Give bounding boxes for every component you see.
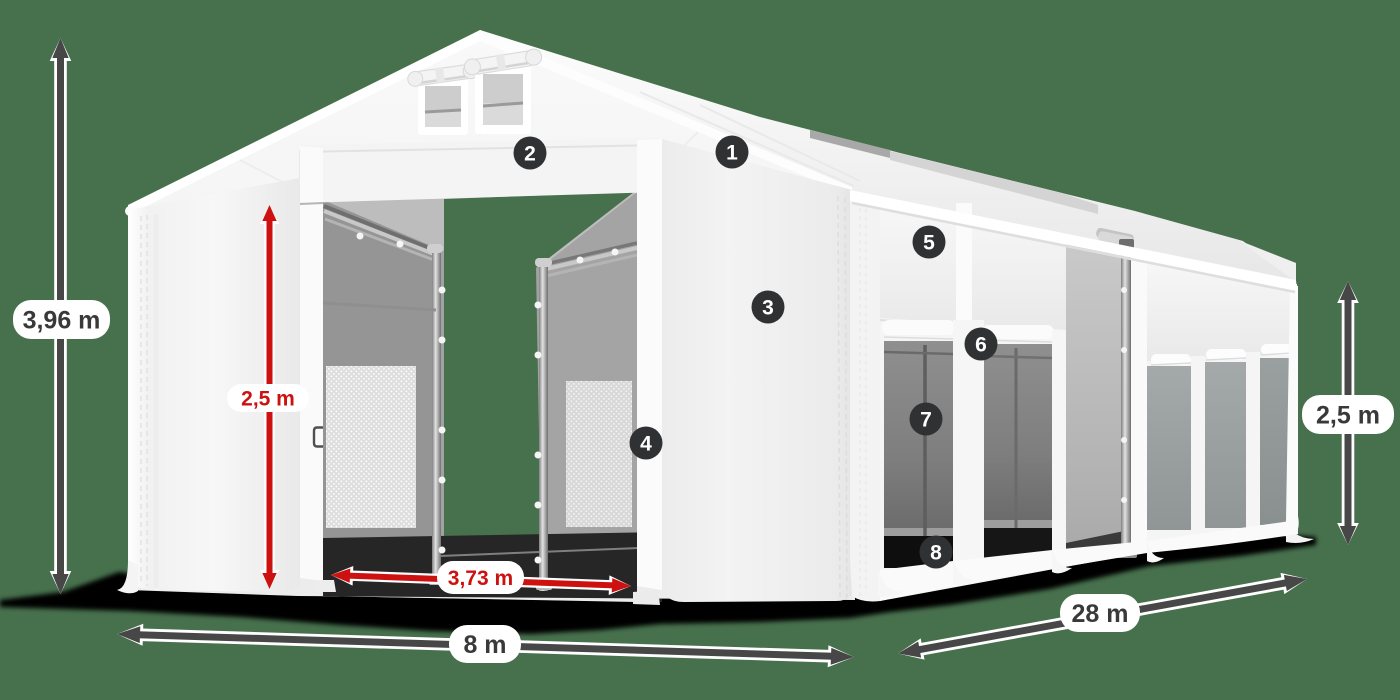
svg-text:1: 1 [726, 142, 738, 165]
svg-text:6: 6 [975, 334, 987, 357]
svg-text:2,5 m: 2,5 m [241, 388, 295, 411]
svg-text:8 m: 8 m [463, 631, 506, 659]
svg-text:3,96 m: 3,96 m [23, 307, 101, 335]
svg-text:3: 3 [762, 297, 774, 320]
svg-text:2,5 m: 2,5 m [1316, 402, 1380, 430]
svg-text:28 m: 28 m [1072, 600, 1129, 628]
svg-text:3,73 m: 3,73 m [448, 567, 513, 590]
svg-text:4: 4 [640, 433, 652, 456]
svg-text:8: 8 [930, 542, 942, 565]
svg-text:5: 5 [923, 232, 935, 255]
svg-text:2: 2 [524, 143, 536, 166]
svg-text:7: 7 [920, 409, 932, 432]
